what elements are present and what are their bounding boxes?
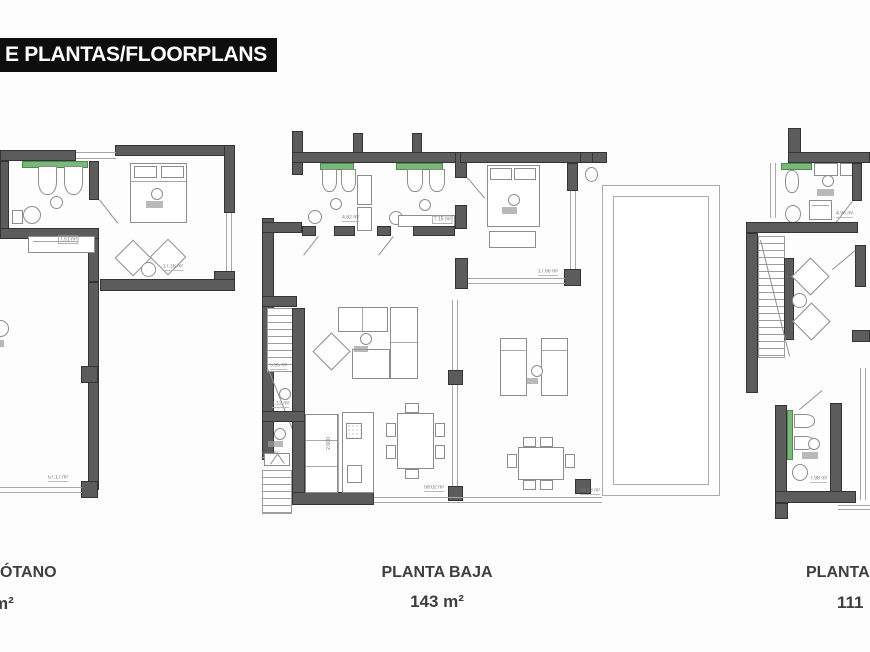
shower-line xyxy=(812,205,829,206)
badge-label xyxy=(802,452,818,459)
wall xyxy=(775,503,788,519)
wall xyxy=(855,245,866,287)
room-area-label: 7.98 m² xyxy=(810,476,827,483)
green-window xyxy=(787,410,793,460)
floorplan-planta-primera: 4.96 m² 7.98 m² xyxy=(0,0,870,652)
wall xyxy=(830,403,842,497)
wall xyxy=(746,233,758,393)
toilet xyxy=(785,205,801,223)
plan-area-planta-baja: 143 m² xyxy=(352,592,522,612)
plan-name-planta-primera: PLANTA xyxy=(806,564,870,582)
plan-name-sotano: ÓTANO xyxy=(0,564,57,582)
plan-name-planta-baja: PLANTA BAJA xyxy=(352,564,522,582)
counter xyxy=(814,163,838,176)
side-table xyxy=(792,293,807,308)
window-line xyxy=(770,163,771,218)
window-line xyxy=(775,163,776,218)
terrace-edge xyxy=(838,509,870,510)
wall xyxy=(746,222,858,233)
plan-area-sotano: m² xyxy=(0,594,14,614)
door-leaf xyxy=(799,390,823,410)
toilet xyxy=(792,464,808,481)
fixture-badge xyxy=(822,175,834,187)
armchair xyxy=(791,257,829,295)
plan-area-planta-primera: 111 xyxy=(837,593,864,613)
floorplan-sheet: E PLANTAS/FLOORPLANS 7.51 m² xyxy=(0,0,870,652)
sink xyxy=(785,170,799,193)
staircase xyxy=(758,236,785,358)
shower xyxy=(809,200,832,220)
wall xyxy=(852,330,870,342)
fixture-badge xyxy=(808,438,820,450)
wall xyxy=(788,152,870,163)
wall xyxy=(775,491,856,503)
badge-label xyxy=(817,189,834,196)
door-leaf xyxy=(832,250,856,270)
wall xyxy=(852,163,862,201)
green-window xyxy=(781,163,812,170)
terrace-edge xyxy=(860,368,861,500)
terrace-edge xyxy=(838,505,870,506)
armchair xyxy=(792,302,830,340)
terrace-edge xyxy=(865,368,866,500)
sink xyxy=(794,414,815,428)
